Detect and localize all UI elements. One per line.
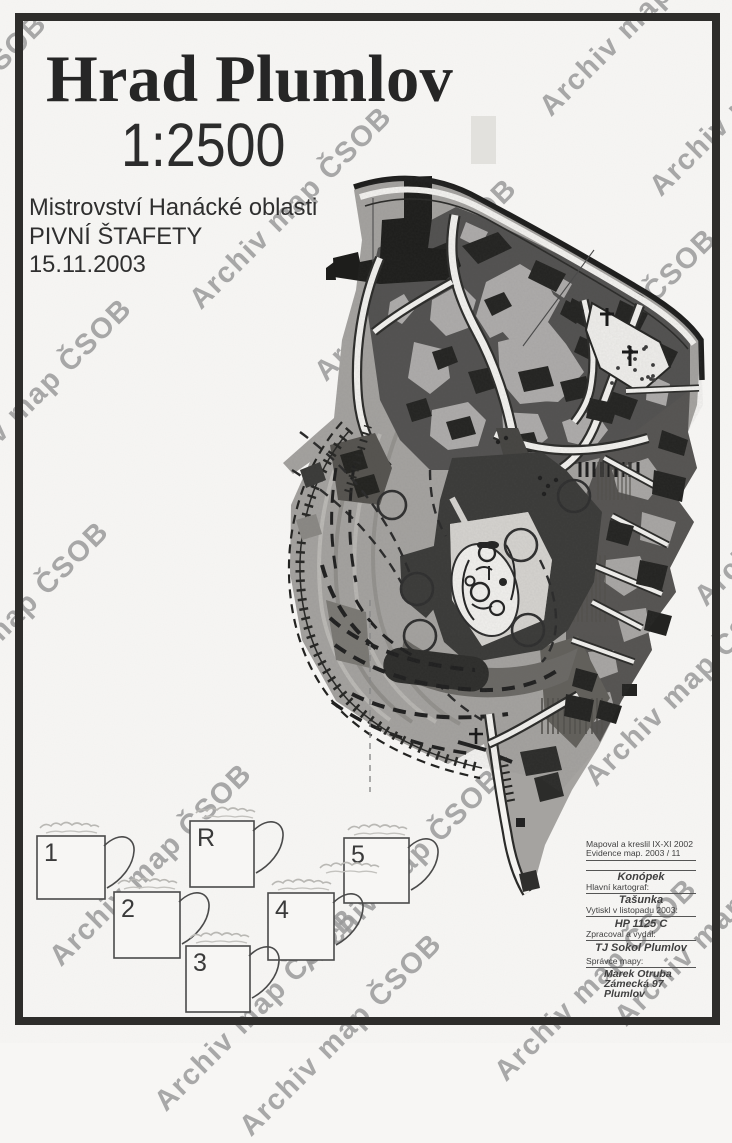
svg-text:R: R bbox=[197, 824, 215, 852]
svg-text:2: 2 bbox=[121, 895, 135, 923]
svg-text:4: 4 bbox=[275, 896, 289, 924]
svg-text:1: 1 bbox=[44, 839, 58, 867]
svg-text:3: 3 bbox=[193, 949, 207, 977]
